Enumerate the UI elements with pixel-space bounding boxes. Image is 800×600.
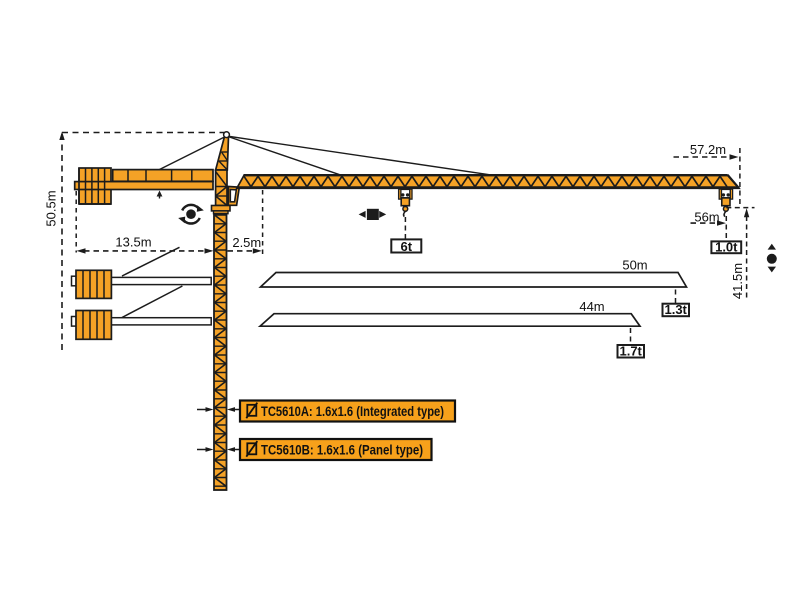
svg-text:1.7t: 1.7t [619,343,642,358]
svg-text:13.5m: 13.5m [115,235,151,250]
svg-text:50m: 50m [622,258,647,273]
svg-text:1.3t: 1.3t [664,302,687,317]
svg-text:44m: 44m [579,299,604,314]
svg-text:1.0t: 1.0t [715,239,738,254]
svg-text:41.5m: 41.5m [730,263,745,299]
svg-text:56m: 56m [694,210,719,225]
svg-text:TC5610B: 1.6x1.6 (Panel type: TC5610B: 1.6x1.6 (Panel type) [261,441,423,457]
svg-text:50.5m: 50.5m [43,190,58,226]
svg-text:57.2m: 57.2m [690,142,726,157]
svg-text:6t: 6t [401,239,413,254]
svg-text:TC5610A: 1.6x1.6 (Integrated: TC5610A: 1.6x1.6 (Integrated type) [261,403,444,419]
svg-text:2.5m: 2.5m [232,235,261,250]
